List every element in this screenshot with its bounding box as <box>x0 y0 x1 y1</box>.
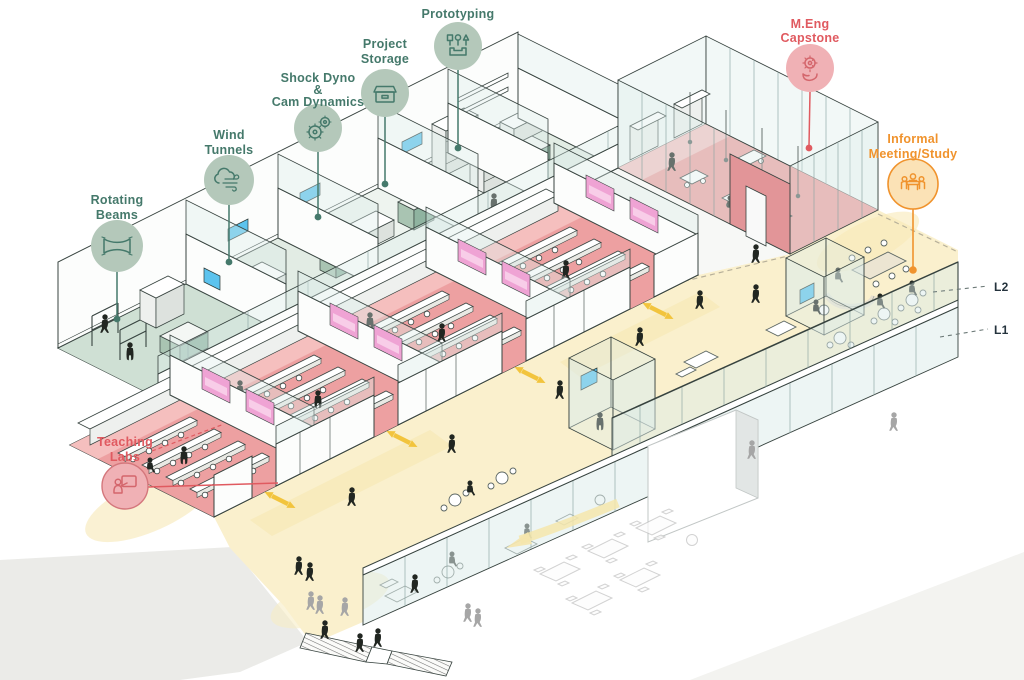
meng-door <box>746 186 766 246</box>
callout-label: Rotating <box>91 193 144 207</box>
level-label-l1: L1 <box>994 323 1009 337</box>
callout-label: Tunnels <box>205 143 254 157</box>
callout-label: Teaching <box>97 435 153 449</box>
callout-label: Project <box>363 37 408 51</box>
callout-label: Meeting/Study <box>869 147 958 161</box>
callout-label: Storage <box>361 52 409 66</box>
callout-label: M.Eng <box>791 17 830 31</box>
callout-label: Informal <box>887 132 938 146</box>
callout-label: Cam Dynamics <box>272 95 365 109</box>
callout-label: Beams <box>96 208 138 222</box>
diagram-canvas: Rotating Beams Wind Tunnels Shock Dyno &… <box>0 0 1024 680</box>
callout-label: Wind <box>213 128 244 142</box>
callout-label: Prototyping <box>422 7 495 21</box>
callout-label: Labs <box>110 450 140 464</box>
axonometric-diagram: Rotating Beams Wind Tunnels Shock Dyno &… <box>0 0 1024 680</box>
callout-label: Capstone <box>781 31 840 45</box>
level-label-l2: L2 <box>994 280 1009 294</box>
